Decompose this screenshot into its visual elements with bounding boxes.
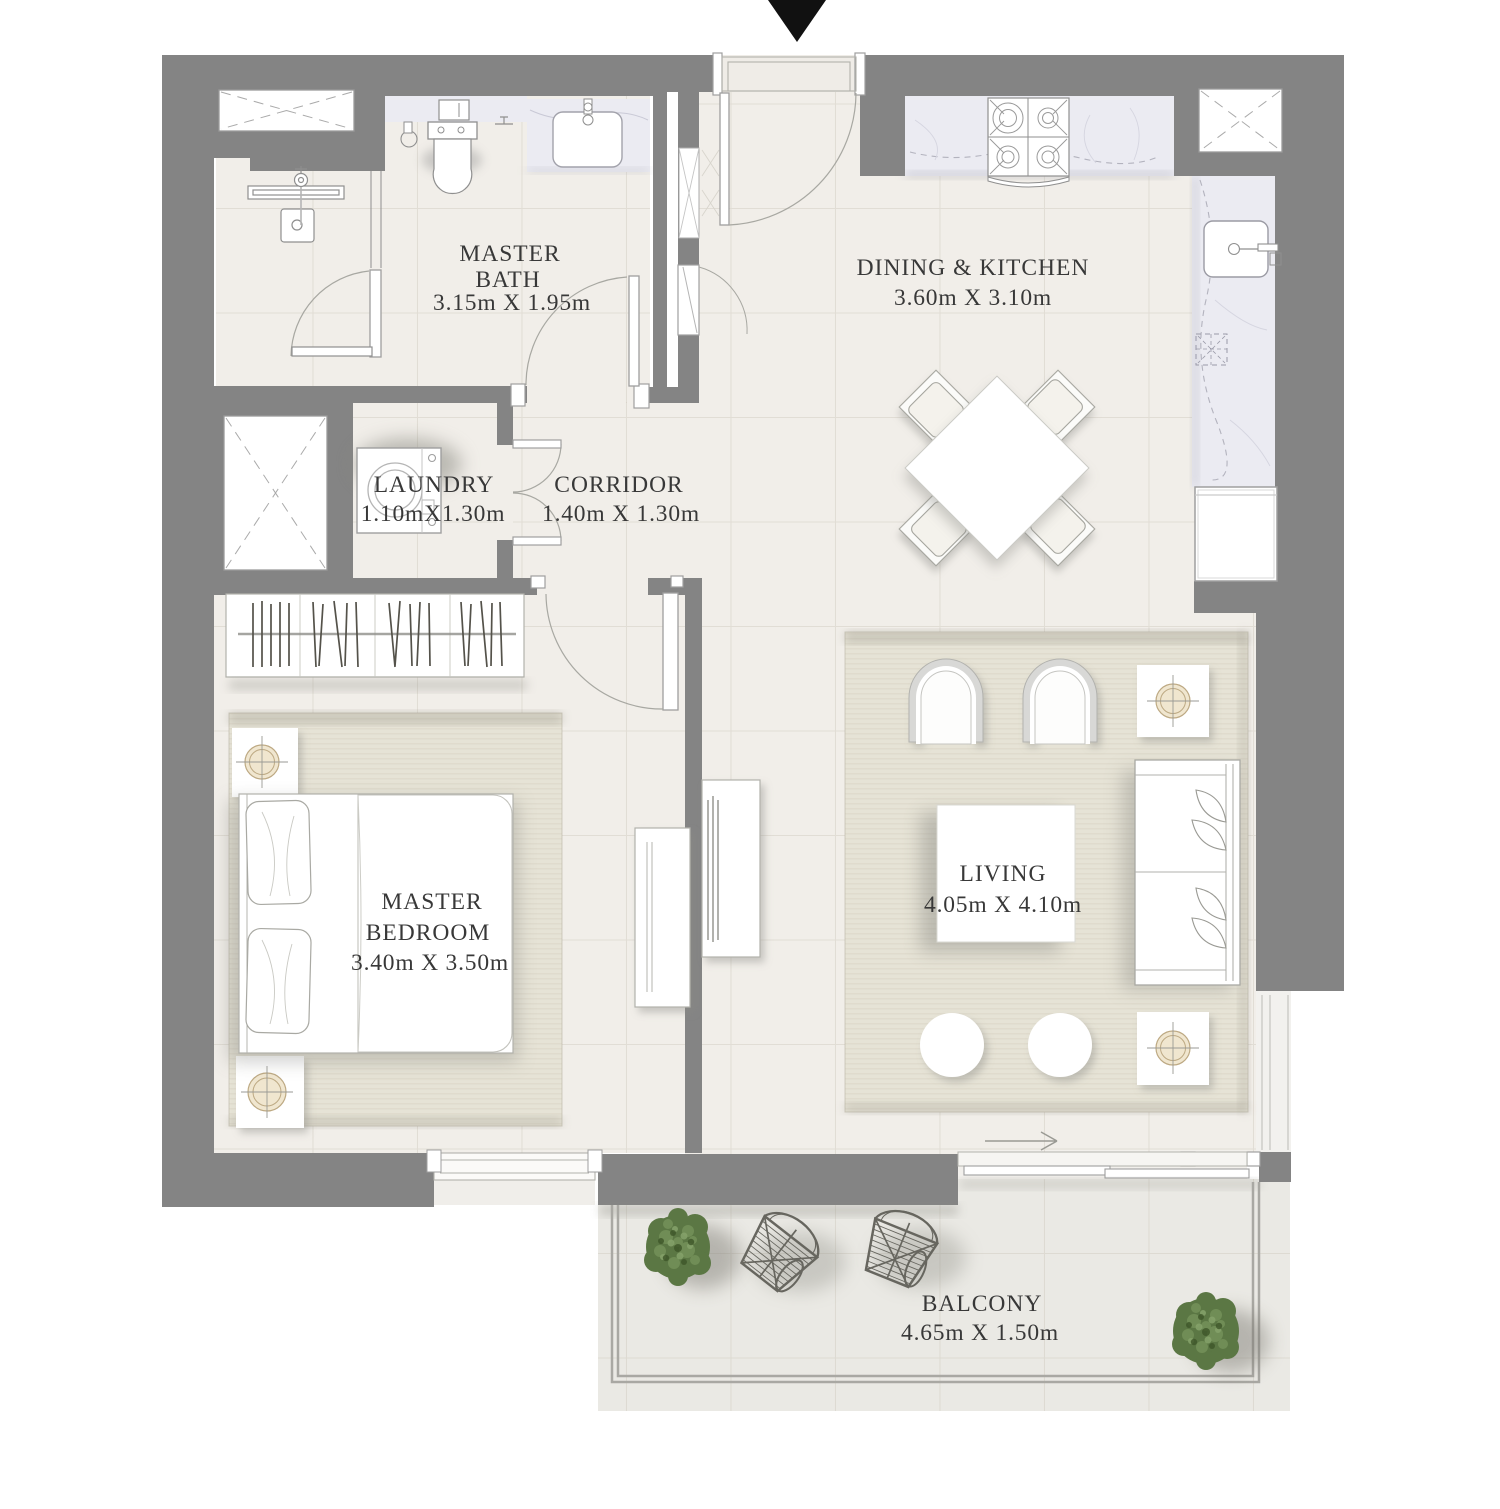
svg-text:3.60m X 3.10m: 3.60m X 3.10m [894, 285, 1052, 311]
svg-text:4.65m X 1.50m: 4.65m X 1.50m [901, 1320, 1059, 1346]
svg-text:3.40m X 3.50m: 3.40m X 3.50m [351, 950, 509, 976]
svg-text:DINING & KITCHEN: DINING & KITCHEN [857, 255, 1090, 281]
svg-text:1.40m X 1.30m: 1.40m X 1.30m [542, 501, 700, 527]
svg-text:1.10mX1.30m: 1.10mX1.30m [361, 501, 506, 527]
svg-text:MASTER: MASTER [381, 889, 482, 915]
svg-text:4.05m X 4.10m: 4.05m X 4.10m [924, 892, 1082, 918]
svg-text:MASTER: MASTER [459, 241, 560, 267]
svg-text:3.15m X 1.95m: 3.15m X 1.95m [433, 290, 591, 316]
svg-text:BALCONY: BALCONY [922, 1291, 1043, 1317]
svg-text:CORRIDOR: CORRIDOR [554, 472, 683, 498]
svg-text:LAUNDRY: LAUNDRY [374, 472, 495, 498]
svg-text:LIVING: LIVING [960, 861, 1047, 887]
svg-text:BEDROOM: BEDROOM [366, 920, 491, 946]
